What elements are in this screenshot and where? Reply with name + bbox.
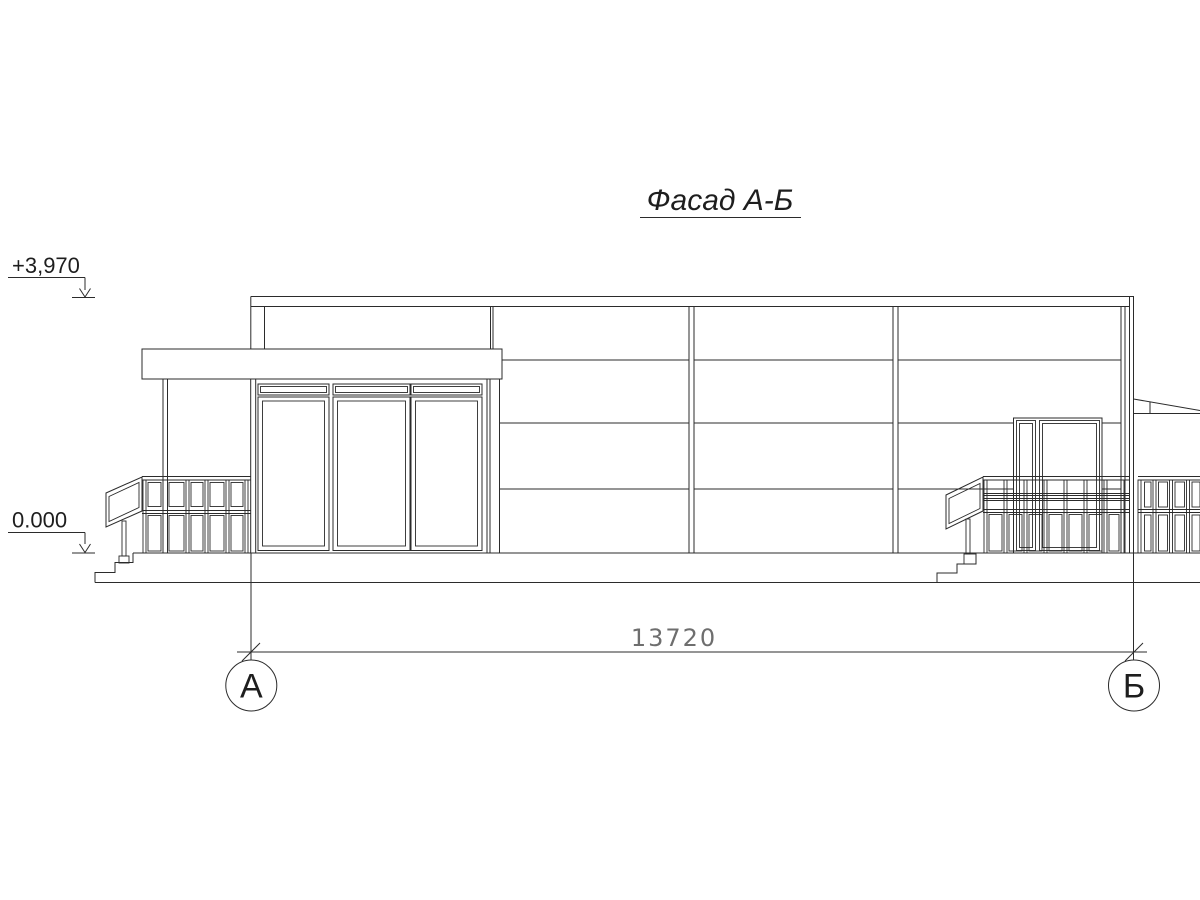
railing-post [245,480,248,553]
page-title: Фасад А-Б [647,184,794,217]
left-railing [106,477,251,564]
side-canopy [1134,399,1200,414]
elevation-top-label: +3,970 [12,253,80,278]
storefront-door-panel [411,397,482,551]
storefront-glazing [258,384,482,551]
left-stairs [95,553,133,583]
porch-column [251,379,256,553]
dimension-label: 13720 [631,624,717,652]
railing-post [143,480,146,553]
elevation-mark-top: +3,970 [8,253,95,298]
railing-post [1153,480,1156,553]
wall-pilaster [689,307,694,554]
storefront-door-panel [333,397,410,551]
railing-post [226,480,229,553]
storefront-door-panel [258,397,329,551]
elevation-mark-zero: 0.000 [8,508,95,554]
facade-drawing-sheet: 13720 А Б +3,970 0.000 Фасад А-Б [0,0,1200,900]
elevation-arrow [80,544,86,553]
axis-circle-a: А [226,660,277,711]
canopy [142,349,502,379]
railing-post [1138,480,1141,553]
drawing-title: Фасад А-Б [640,184,801,218]
dimension-line: 13720 [237,553,1147,661]
base-and-stairs [95,553,1200,583]
railing-post [205,480,208,553]
axis-a-label: А [240,668,263,706]
railing-post [186,480,189,553]
railing-post [1004,480,1007,553]
porch-column [163,379,168,553]
elevation-arrow [80,289,86,298]
railing-post [1170,480,1173,553]
wall-pilaster [893,307,898,554]
axis-b-label: Б [1123,668,1145,706]
railing-post [1187,480,1190,553]
elevation-zero-label: 0.000 [12,508,67,533]
right-stairs [937,553,976,583]
axis-circle-b: Б [1109,660,1160,711]
outer-right-railing [1138,477,1200,554]
right-corner [1130,297,1134,554]
stair-rail [106,477,142,527]
elevation-arrow [85,544,91,553]
railing-post [984,480,987,553]
elevation-arrow [85,289,91,298]
porch-columns [163,379,256,553]
stair-rail-post [966,519,970,554]
stair-rail-post [122,521,126,556]
railing-post [1104,480,1107,553]
facade-drawing-svg: 13720 А Б +3,970 0.000 Фасад А-Б [0,0,1200,900]
